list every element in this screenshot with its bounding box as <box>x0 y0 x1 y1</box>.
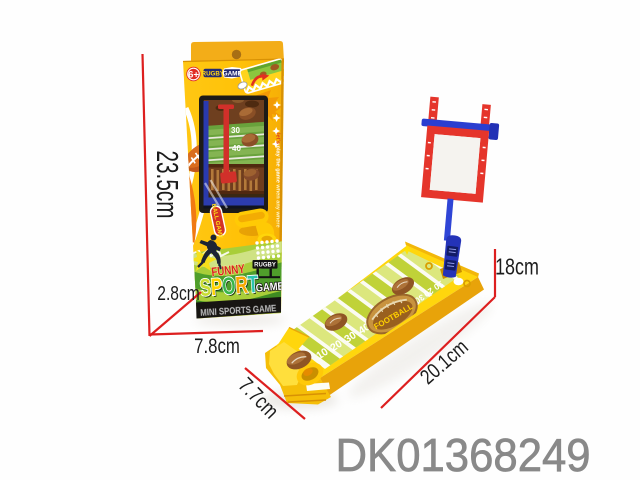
svg-text:DK01368249: DK01368249 <box>336 429 591 480</box>
svg-text:2.8cm: 2.8cm <box>157 282 199 304</box>
svg-text:GAME: GAME <box>255 281 284 295</box>
svg-text:SPORT: SPORT <box>199 271 260 302</box>
svg-text:18cm: 18cm <box>495 254 539 280</box>
svg-text:6+: 6+ <box>188 70 199 81</box>
svg-text:23.5cm: 23.5cm <box>150 150 185 218</box>
svg-text:30: 30 <box>231 126 240 135</box>
svg-text:RUGBY: RUGBY <box>254 263 276 269</box>
svg-text:let's play the game when any w: let's play the game when any where <box>275 133 281 228</box>
svg-text:7.8cm: 7.8cm <box>194 335 240 358</box>
svg-text:40: 40 <box>232 144 241 153</box>
svg-text:RUGBY: RUGBY <box>202 70 225 77</box>
